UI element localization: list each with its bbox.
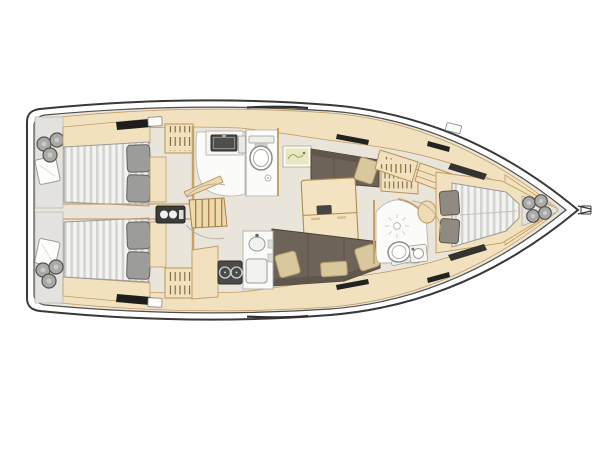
drain-dot <box>267 177 269 179</box>
fender-core <box>42 142 47 147</box>
fender-core <box>531 214 535 218</box>
dispenser <box>268 240 273 248</box>
pillow <box>127 175 151 203</box>
pillow <box>127 145 151 173</box>
square-basin <box>246 259 267 283</box>
fender-core <box>41 268 46 273</box>
pillow <box>439 190 460 215</box>
aft-head <box>184 128 278 197</box>
basin <box>413 248 424 259</box>
table-handle <box>311 218 320 221</box>
faucet-icon <box>255 234 259 238</box>
hanger-icons <box>167 126 191 151</box>
burner-dot <box>236 272 238 274</box>
pillow <box>127 222 151 250</box>
stairs <box>189 198 227 228</box>
table-handle <box>337 216 346 219</box>
shower-drain <box>385 214 409 238</box>
fender-core <box>55 138 60 143</box>
nightstand <box>150 157 166 202</box>
mast-block <box>316 205 331 215</box>
faucet-icon <box>222 134 226 138</box>
yacht-floor-plan <box>0 0 600 450</box>
throw-cushion <box>321 261 348 277</box>
galley-counter <box>192 246 218 299</box>
mini-hatch <box>148 117 162 127</box>
hanger-icons <box>167 270 191 296</box>
panel-switch <box>179 210 184 219</box>
fender-core <box>48 153 53 158</box>
round-sink <box>249 237 265 251</box>
fender-core <box>539 199 543 203</box>
hull-window-strip-top <box>247 107 308 108</box>
pillow <box>439 218 460 243</box>
mini-hatch <box>148 298 162 308</box>
nightstand <box>150 222 166 267</box>
fender-core <box>543 211 547 215</box>
drain-icon <box>394 223 401 230</box>
chart-dot <box>303 152 306 155</box>
fender-core <box>527 201 531 205</box>
dial-icon <box>160 211 168 219</box>
pillow <box>127 252 151 280</box>
boat-floor-plan-canvas <box>0 0 600 450</box>
dispenser <box>268 254 273 262</box>
toilet-cistern <box>249 136 274 143</box>
cabinet <box>239 136 246 153</box>
washbasin-group <box>409 244 428 263</box>
fender-core <box>47 279 52 284</box>
fender-core <box>54 265 59 270</box>
dial-icon <box>169 211 177 219</box>
burner-dot <box>224 272 226 274</box>
